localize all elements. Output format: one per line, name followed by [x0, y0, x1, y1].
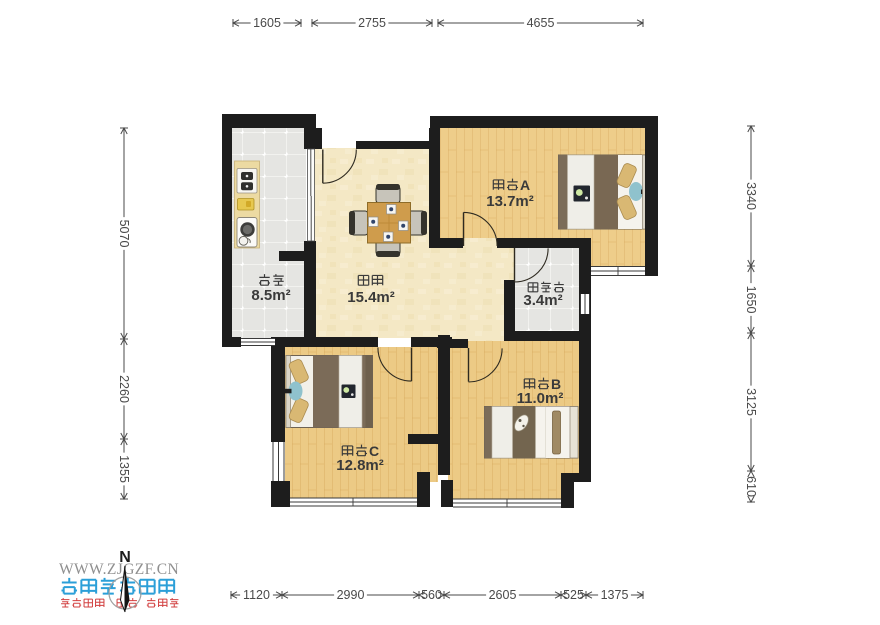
svg-text:12.8m²: 12.8m² [336, 457, 384, 474]
svg-text:2605: 2605 [489, 588, 517, 602]
svg-text:2990: 2990 [337, 588, 365, 602]
svg-text:8.5m²: 8.5m² [251, 287, 290, 304]
svg-text:610: 610 [744, 476, 758, 497]
svg-text:560: 560 [421, 588, 442, 602]
svg-text:4655: 4655 [527, 16, 555, 30]
svg-text:13.7m²: 13.7m² [486, 193, 534, 210]
svg-text:1120: 1120 [243, 588, 270, 602]
svg-text:5070: 5070 [117, 220, 131, 248]
svg-text:1375: 1375 [601, 588, 629, 602]
svg-text:3125: 3125 [744, 388, 758, 416]
svg-text:A: A [520, 177, 530, 193]
svg-text:3340: 3340 [744, 182, 758, 210]
svg-text:1650: 1650 [744, 286, 758, 314]
svg-text:15.4m²: 15.4m² [347, 289, 395, 306]
svg-text:2755: 2755 [358, 16, 386, 30]
svg-text:11.0m²: 11.0m² [517, 390, 564, 407]
svg-text:3.4m²: 3.4m² [523, 292, 562, 309]
svg-text:1355: 1355 [117, 455, 131, 483]
svg-text:1605: 1605 [253, 16, 281, 30]
svg-text:2260: 2260 [117, 375, 131, 403]
svg-text:N: N [119, 549, 131, 566]
svg-text:525: 525 [563, 588, 584, 602]
